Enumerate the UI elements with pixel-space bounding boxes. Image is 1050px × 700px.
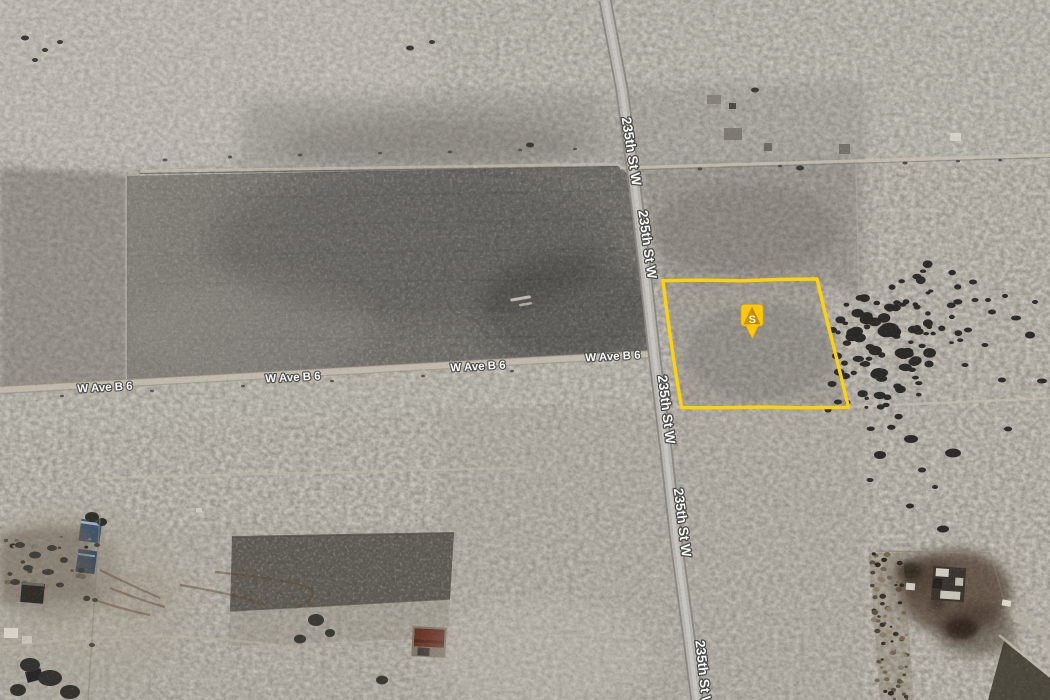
svg-text:S: S bbox=[749, 314, 756, 326]
